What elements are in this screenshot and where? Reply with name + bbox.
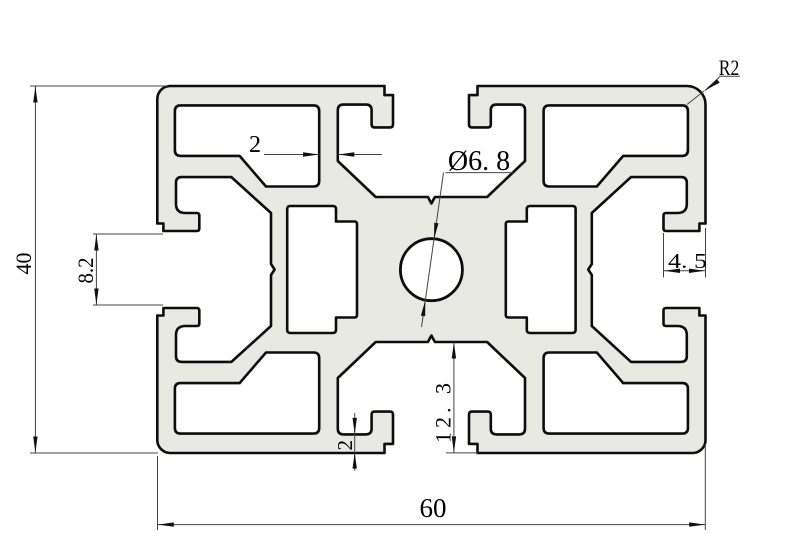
svg-text:60: 60	[420, 493, 447, 523]
svg-text:2: 2	[249, 132, 261, 158]
svg-text:R2: R2	[719, 55, 740, 80]
svg-text:8.2: 8.2	[73, 258, 98, 284]
svg-text:12. 3: 12. 3	[431, 379, 456, 443]
svg-text:2: 2	[333, 440, 357, 451]
svg-text:40: 40	[11, 253, 36, 275]
svg-text:4. 5: 4. 5	[668, 249, 707, 273]
svg-text:Ø6. 8: Ø6. 8	[448, 146, 510, 177]
